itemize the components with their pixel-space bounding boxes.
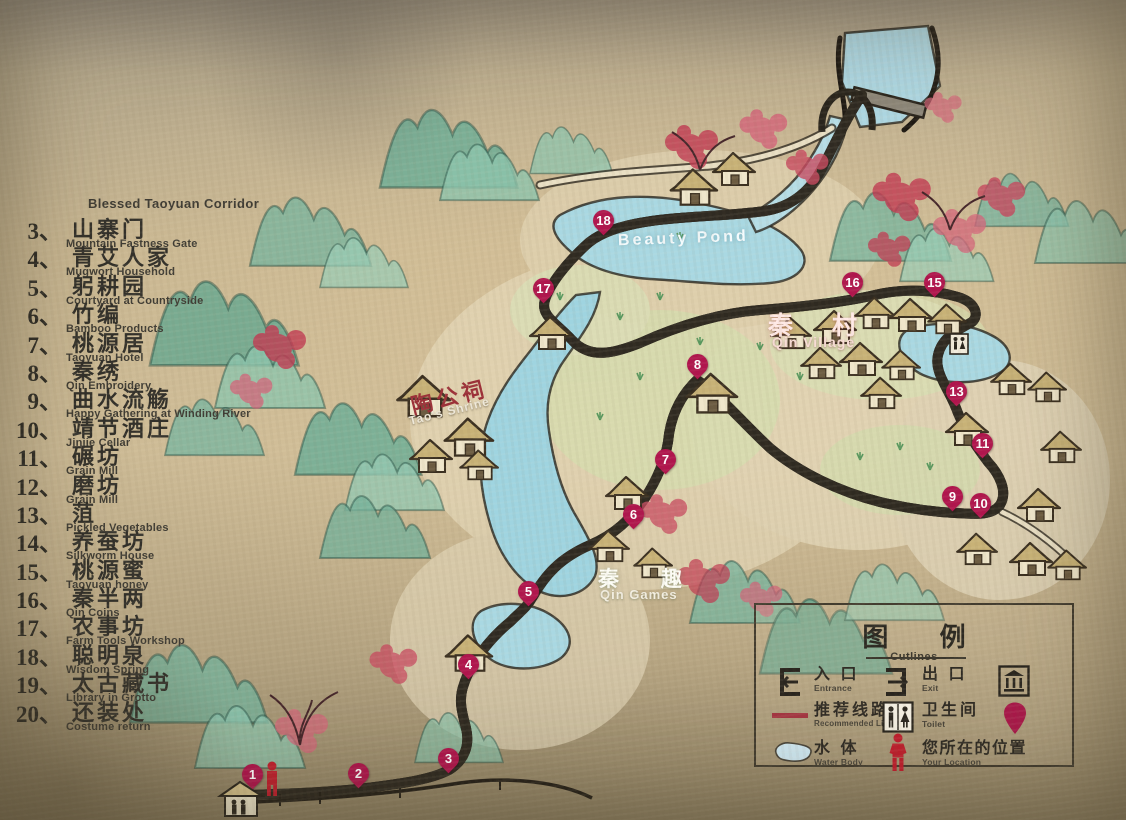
map-marker-number: 11 — [972, 433, 993, 454]
map-marker-number: 3 — [438, 748, 459, 769]
poi-item-10: 10、靖节酒庄Jinjie Cellar — [0, 420, 320, 448]
poi-item-6: 6、竹编Bamboo Products — [0, 306, 320, 334]
legend-toilet: 卫生间 Toilet — [922, 703, 979, 729]
map-marker-17: 17 — [528, 274, 558, 304]
entrance-building — [220, 782, 262, 816]
poi-item-11: 11、碾坊Grain Mill — [0, 448, 320, 476]
poi-item-16: 16、秦半两Qin Coins — [0, 590, 320, 618]
poi-item-13: 13、菹Pickled Vegetables — [0, 505, 320, 533]
legend-title-rule — [866, 657, 966, 659]
map-marker-1: 1 — [237, 760, 267, 790]
poi-number: 19、 — [0, 675, 62, 697]
poi-name-en: Costume return — [66, 722, 151, 733]
poi-number: 3、 — [0, 221, 62, 243]
map-marker-number: 6 — [623, 504, 644, 525]
poi-number: 18、 — [0, 647, 62, 669]
poi-number: 6、 — [0, 306, 62, 328]
map-marker-5: 5 — [513, 577, 543, 607]
village-toilet-icon — [950, 334, 968, 354]
map-marker-15: 15 — [919, 268, 949, 298]
poi-item-17: 17、农事坊Farm Tools Workshop — [0, 618, 320, 646]
map-marker-number: 17 — [533, 278, 554, 299]
map-marker-16: 16 — [837, 268, 867, 298]
entrance-icon — [774, 667, 804, 697]
map-marker-number: 18 — [593, 210, 614, 231]
poi-number: 12、 — [0, 477, 62, 499]
poi-number: 8、 — [0, 363, 62, 385]
map-marker-number: 16 — [842, 272, 863, 293]
label-qin-games-en: Qin Games — [600, 587, 678, 602]
toilet-icon — [882, 701, 914, 733]
map-marker-number: 8 — [687, 354, 708, 375]
poi-index-list: Blessed Taoyuan Corridor 3、山寨门Mountain F… — [0, 196, 320, 722]
exit-icon — [882, 667, 912, 697]
scenic-map-board: Beauty Pond 秦 村 Qin Village 陶公祠 Tao's Sh… — [0, 0, 1126, 820]
map-marker-7: 7 — [650, 445, 680, 475]
poi-item-7: 7、桃源居Taoyuan Hotel — [0, 335, 320, 363]
poi-number: 13、 — [0, 505, 62, 527]
poi-number: 15、 — [0, 562, 62, 584]
poi-number: 11、 — [0, 448, 62, 470]
water-body-icon — [770, 739, 814, 765]
map-marker-number: 2 — [348, 763, 369, 784]
map-marker-number: 13 — [946, 381, 967, 402]
label-qin-village-en: Qin Village — [772, 334, 855, 350]
pavilion-icon — [998, 665, 1030, 697]
spot-pin-icon — [1002, 701, 1028, 735]
poi-number: 5、 — [0, 278, 62, 300]
map-marker-9: 9 — [937, 482, 967, 512]
map-marker-13: 13 — [941, 377, 971, 407]
poi-item-14: 14、养蚕坊Silkworm House — [0, 533, 320, 561]
map-marker-number: 5 — [518, 581, 539, 602]
legend-exit: 出 口 Exit — [922, 667, 967, 693]
poi-number: 16、 — [0, 590, 62, 612]
poi-item-20: 20、还装处Costume return — [0, 704, 320, 732]
map-marker-number: 10 — [970, 493, 991, 514]
recommended-line-swatch — [772, 713, 808, 718]
map-marker-number: 15 — [924, 272, 945, 293]
legend-your-location: 您所在的位置 Your Location — [922, 741, 1027, 767]
map-marker-number: 7 — [655, 449, 676, 470]
poi-item-4: 4、青艾人家Mugwort Household — [0, 249, 320, 277]
poi-number: 4、 — [0, 249, 62, 271]
map-marker-11: 11 — [967, 429, 997, 459]
map-marker-number: 1 — [242, 764, 263, 785]
map-marker-2: 2 — [343, 759, 373, 789]
poi-item-5: 5、躬耕园Courtyard at Countryside — [0, 278, 320, 306]
legend-entrance: 入 口 Entrance — [814, 667, 859, 693]
legend-water: 水 体 Water Body — [814, 741, 863, 767]
poi-item-19: 19、太古藏书Library in Grotto — [0, 675, 320, 703]
map-marker-4: 4 — [453, 650, 483, 680]
map-marker-18: 18 — [588, 206, 618, 236]
poi-number: 9、 — [0, 391, 62, 413]
map-marker-3: 3 — [433, 744, 463, 774]
poi-item-15: 15、桃源蜜Taoyuan honey — [0, 562, 320, 590]
map-marker-10: 10 — [965, 489, 995, 519]
poi-item-12: 12、磨坊Grain Mill — [0, 477, 320, 505]
map-marker-8: 8 — [682, 350, 712, 380]
legend-title-zh: 图 例 — [840, 622, 987, 652]
poi-number: 17、 — [0, 618, 62, 640]
your-location-icon — [888, 733, 908, 773]
map-marker-6: 6 — [618, 500, 648, 530]
map-marker-number: 9 — [942, 486, 963, 507]
legend-box: 图 例 Cutlines 入 口 Entrance 出 口 Exit — [754, 603, 1074, 767]
poi-number: 10、 — [0, 420, 62, 442]
poi-index-header: Blessed Taoyuan Corridor — [0, 196, 320, 211]
poi-number: 20、 — [0, 704, 62, 726]
map-marker-number: 4 — [458, 654, 479, 675]
poi-number: 14、 — [0, 533, 62, 555]
poi-number: 7、 — [0, 335, 62, 357]
